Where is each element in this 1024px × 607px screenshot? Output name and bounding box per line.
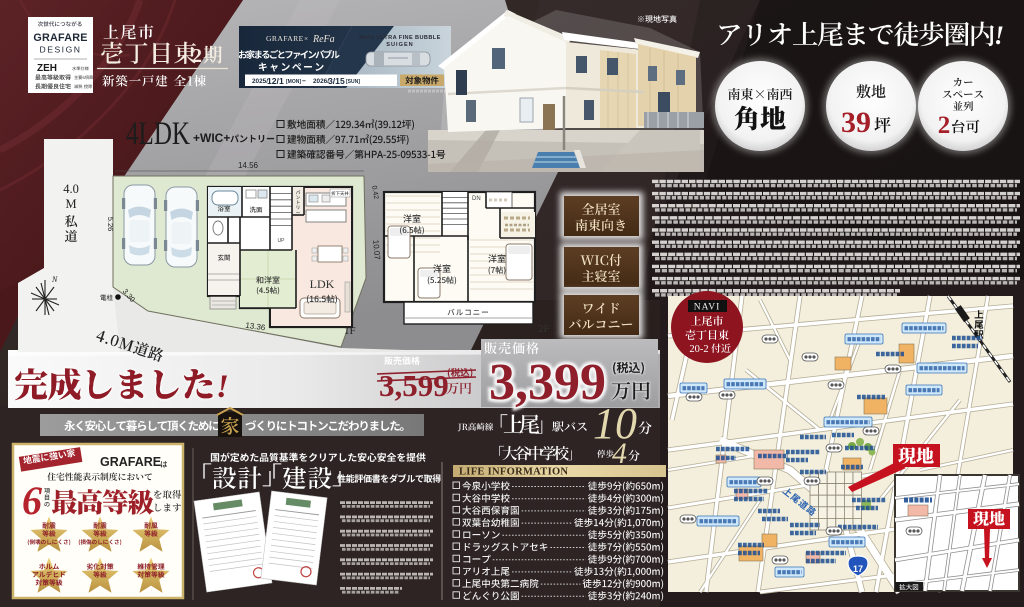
svg-text:39: 39 — [841, 106, 871, 139]
svg-text:4LDK: 4LDK — [126, 116, 190, 152]
svg-text:DN: DN — [472, 196, 481, 202]
svg-text:M: M — [65, 197, 76, 211]
svg-text:GRAFARE: GRAFARE — [100, 455, 161, 469]
svg-text:ReFa ULTRA FINE BUBBLE: ReFa ULTRA FINE BUBBLE — [359, 35, 441, 41]
svg-text:ReFa: ReFa — [312, 34, 335, 45]
svg-text:3,399: 3,399 — [489, 354, 606, 411]
svg-text:2025/: 2025/ — [252, 78, 268, 85]
svg-text:SUIGEN: SUIGEN — [386, 42, 413, 48]
svg-text:4.0: 4.0 — [63, 182, 79, 196]
svg-text:ZEH: ZEH — [37, 63, 57, 74]
svg-text:2026/: 2026/ — [313, 78, 329, 85]
svg-text:!: ! — [216, 369, 229, 405]
svg-text:GRAFARE: GRAFARE — [33, 32, 87, 44]
svg-text:GRAFARE: GRAFARE — [266, 34, 304, 43]
svg-text:17: 17 — [853, 564, 863, 574]
svg-text:3/15: 3/15 — [328, 76, 345, 86]
svg-text:12/1: 12/1 — [267, 76, 284, 86]
svg-text:DESIGN: DESIGN — [40, 45, 82, 55]
svg-text:+WIC+: +WIC+ — [193, 131, 230, 145]
svg-text:20-2: 20-2 — [689, 344, 708, 355]
svg-text:N: N — [51, 275, 58, 284]
svg-text:NAVI: NAVI — [694, 303, 721, 313]
svg-text:–: – — [302, 78, 306, 85]
svg-text:!: ! — [994, 21, 1004, 50]
svg-text:LDK: LDK — [310, 277, 335, 291]
svg-text:[SUN]: [SUN] — [346, 79, 360, 85]
svg-text:1F: 1F — [344, 325, 356, 337]
svg-text:UP: UP — [278, 238, 286, 244]
svg-text:2: 2 — [938, 112, 951, 139]
svg-text:2: 2 — [192, 45, 202, 67]
svg-text:6: 6 — [22, 478, 42, 523]
svg-text:10.07: 10.07 — [371, 239, 382, 260]
svg-text:[MON]: [MON] — [286, 79, 301, 85]
svg-text:2F: 2F — [538, 323, 550, 335]
svg-text:×: × — [304, 34, 308, 43]
svg-text:5.26: 5.26 — [106, 217, 115, 232]
svg-text:14.56: 14.56 — [238, 161, 259, 170]
svg-text:LIFE INFORMATION: LIFE INFORMATION — [459, 467, 568, 478]
